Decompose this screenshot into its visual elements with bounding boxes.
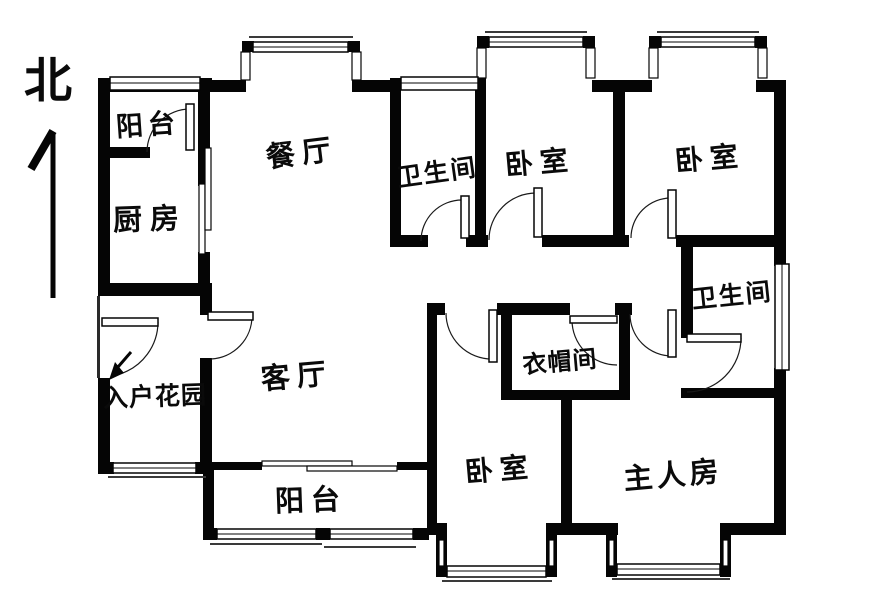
door-bathroom-right <box>687 334 741 392</box>
door-arc <box>211 316 252 359</box>
north-compass: 北 <box>24 55 72 298</box>
wall-segment <box>542 235 620 247</box>
wall-segment <box>98 78 110 296</box>
door-leaf <box>687 334 741 342</box>
wall-segment <box>613 80 625 247</box>
window-side <box>439 540 444 566</box>
wall-segment <box>212 462 262 470</box>
door-leaf <box>461 196 469 238</box>
wall-segment <box>352 80 396 92</box>
entry-arrow-shaft <box>118 352 131 367</box>
window-side <box>477 48 486 78</box>
wall-segment <box>501 390 630 400</box>
door-arc <box>687 338 741 392</box>
window-sill <box>324 546 416 548</box>
room-label-cloakroom: 衣帽间 <box>521 345 598 379</box>
window-sill <box>210 543 322 545</box>
window-sill <box>612 578 730 580</box>
wall-segment <box>613 235 629 247</box>
wall-segment <box>98 462 114 474</box>
door-leaf <box>534 188 542 237</box>
floorplan-canvas: 北 阳台 厨房 餐厅 卫生间 卧室 卧室 卫生间 客厅 入户花园 衣帽间 卧室 … <box>0 0 874 598</box>
room-label-dining: 餐厅 <box>264 133 340 175</box>
wall-door-jamb <box>97 296 100 378</box>
wall-segment <box>98 283 210 296</box>
wall-segment <box>200 358 212 470</box>
window-side <box>723 540 728 566</box>
door-arc <box>421 200 462 241</box>
room-label-bathroom-top: 卫生间 <box>395 153 479 192</box>
wall-segment <box>200 283 212 315</box>
door-bedroom-top-right <box>631 190 676 238</box>
room-label-bedroom-top-left: 卧室 <box>504 143 577 182</box>
window-side <box>586 48 595 78</box>
door-leaf <box>668 190 676 238</box>
wall-segment <box>390 78 401 247</box>
door-arc <box>631 198 671 238</box>
room-label-entry-garden: 入户花园 <box>103 380 208 413</box>
room-label-living: 客厅 <box>260 356 335 396</box>
door-main-entry <box>102 318 158 374</box>
door-garden-living <box>208 312 253 359</box>
door-bedroom-bottom <box>446 310 497 362</box>
wall-segment <box>477 36 489 48</box>
room-label-balcony-bottom: 阳台 <box>274 482 347 518</box>
wall-segment <box>501 303 512 400</box>
wall-segment <box>475 78 486 247</box>
bedroom2-bay-window <box>649 31 767 78</box>
door-arc <box>120 322 158 374</box>
door-leaf <box>489 310 497 362</box>
wall-segment <box>583 36 595 48</box>
window-sill <box>249 36 353 38</box>
living-balcony-sliding-door <box>262 461 397 471</box>
floorplan-svg: 北 阳台 厨房 餐厅 卫生间 卧室 卧室 卫生间 客厅 入户花园 衣帽间 卧室 … <box>0 0 874 598</box>
door-leaf <box>186 104 194 150</box>
room-label-balcony-top: 阳台 <box>115 107 181 142</box>
wall-segment <box>242 41 254 52</box>
wall-segment <box>397 462 427 470</box>
door-arc <box>630 314 672 356</box>
door-bedroom-top-left <box>489 188 542 240</box>
sliding-panel <box>307 466 397 471</box>
entry-arrow <box>109 352 131 380</box>
wall-segment <box>681 388 786 398</box>
north-arrow-head <box>31 131 53 169</box>
room-label-bedroom-top-right: 卧室 <box>674 139 747 178</box>
master-bay-window <box>606 533 731 580</box>
wall-segment <box>619 303 630 400</box>
window-sill <box>108 476 206 478</box>
door-leaf <box>570 316 617 323</box>
door-leaf <box>102 318 158 326</box>
wall-segment <box>110 147 150 158</box>
door-leaf <box>208 312 253 320</box>
door-master-hall <box>630 310 676 357</box>
wall-segment <box>205 528 217 540</box>
window-side <box>549 540 554 566</box>
wall-segment <box>427 303 437 535</box>
door-arc <box>446 313 492 359</box>
wall-segment <box>392 235 428 247</box>
wall-segment <box>316 528 330 540</box>
window-side <box>758 48 767 78</box>
north-label: 北 <box>24 55 72 108</box>
wall-segment <box>755 36 767 48</box>
door-arc <box>489 193 536 240</box>
sliding-panel <box>199 184 205 254</box>
sliding-panel <box>262 461 352 466</box>
window-sill <box>485 31 587 33</box>
window-side <box>352 52 361 80</box>
bedroom-bottom-bay-window <box>436 533 557 582</box>
wall-segment <box>649 36 661 48</box>
window-side <box>649 48 658 78</box>
bedroom1-bay-window <box>477 31 595 78</box>
window-side <box>609 540 614 566</box>
room-label-kitchen: 厨房 <box>112 202 187 238</box>
window-sill <box>442 580 552 582</box>
room-label-bedroom-bottom: 卧室 <box>464 450 537 489</box>
room-label-bathroom-right: 卫生间 <box>690 278 773 314</box>
sliding-panel <box>205 148 211 230</box>
wall-segment <box>348 41 360 52</box>
door-leaf <box>668 310 676 357</box>
dining-bay-window <box>241 36 361 80</box>
wall-segment <box>413 528 429 540</box>
window-sill <box>657 31 759 33</box>
window-side <box>241 52 250 80</box>
room-label-master: 主人房 <box>622 455 724 497</box>
door-bathroom-top <box>421 196 469 241</box>
wall-segment <box>561 400 572 525</box>
